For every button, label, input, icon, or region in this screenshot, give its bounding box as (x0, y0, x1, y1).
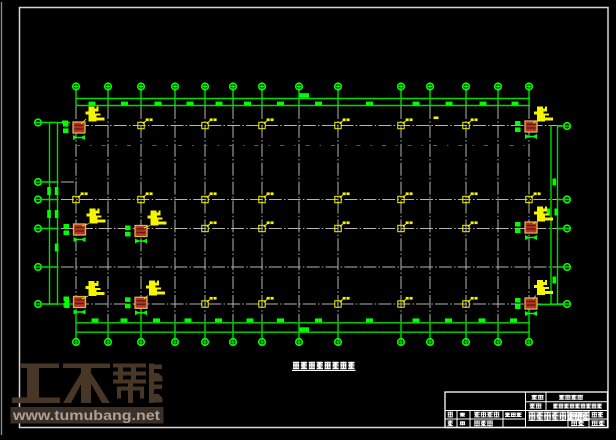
svg-text:www.tumubang.net: www.tumubang.net (12, 407, 161, 423)
